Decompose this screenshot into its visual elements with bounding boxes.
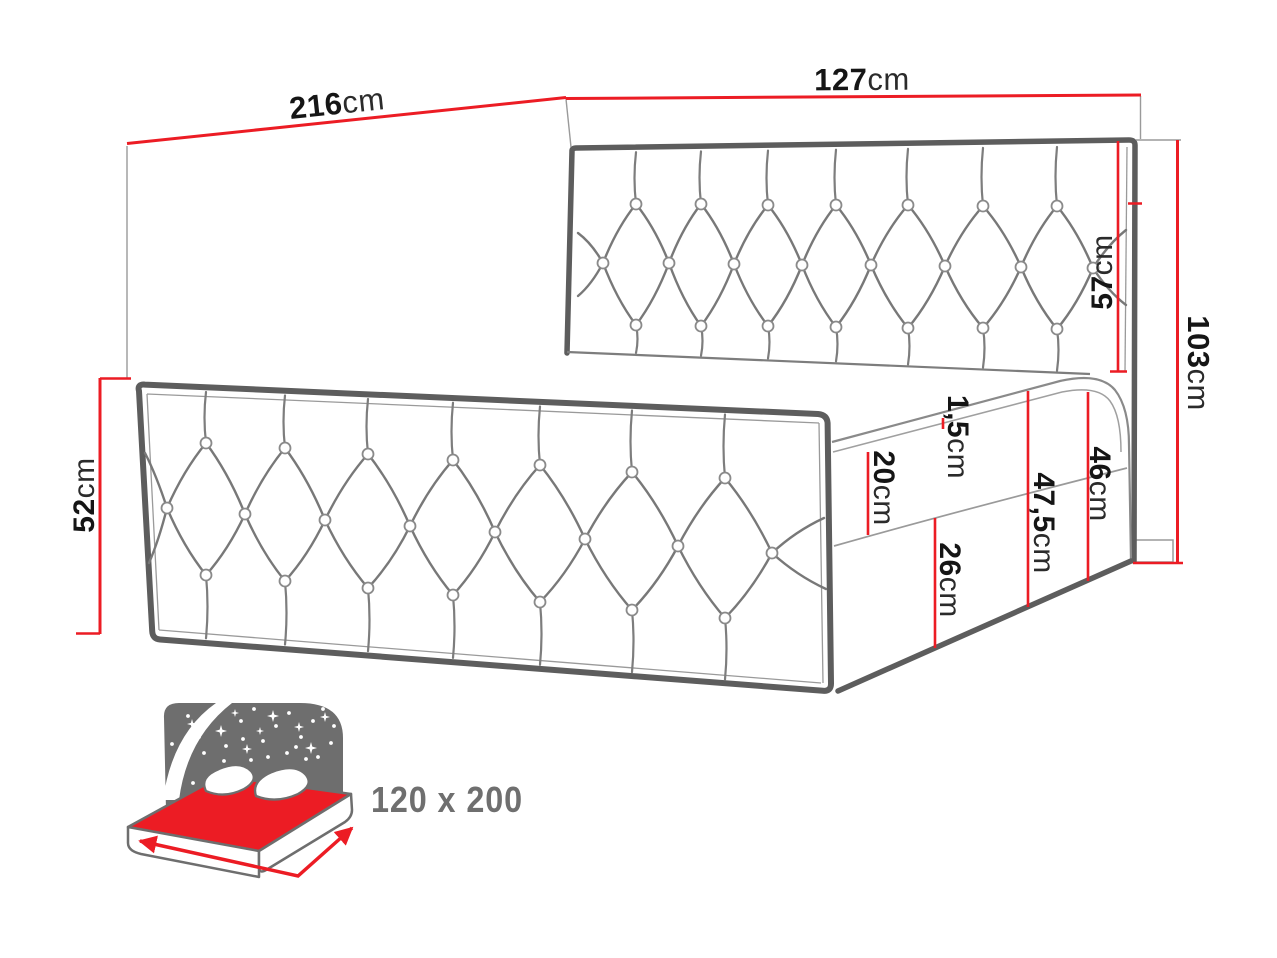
star-dot	[202, 751, 206, 755]
tuft-button	[696, 321, 707, 332]
headboard-face	[567, 142, 1135, 375]
star-dot	[311, 719, 315, 723]
star-dot	[170, 742, 174, 746]
star-dot	[266, 755, 270, 759]
label-mattress: 20cm	[867, 450, 900, 525]
bed-with-starry-headboard-icon: 120 x 200	[128, 703, 523, 877]
tuft-button	[664, 258, 675, 269]
tuft-button	[1052, 324, 1063, 335]
star-dot	[224, 744, 228, 748]
label-box: 26cm	[933, 542, 966, 617]
tuft-button	[240, 509, 251, 520]
star-dot	[321, 707, 325, 711]
tuft-button	[940, 261, 951, 272]
star-dot	[249, 758, 253, 762]
tuft-button	[903, 323, 914, 334]
tuft-button	[631, 199, 642, 210]
star-dot	[222, 759, 226, 763]
tuft-button	[631, 320, 642, 331]
tuft-button	[978, 201, 989, 212]
tuft-button	[320, 515, 331, 526]
star-dot	[241, 737, 245, 741]
tuft-button	[162, 503, 173, 514]
tuft-button	[363, 449, 374, 460]
star-dot	[285, 751, 289, 755]
label-width: 127cm	[814, 62, 910, 98]
star-dot	[287, 711, 291, 715]
tuft-button	[535, 460, 546, 471]
tuft-button	[673, 541, 684, 552]
tuft-button	[598, 258, 609, 269]
tuft-button	[280, 443, 291, 454]
tuft-button	[763, 321, 774, 332]
tuft-button	[767, 548, 778, 559]
star-dot	[316, 755, 320, 759]
tuft-button	[720, 473, 731, 484]
star-dot	[294, 745, 298, 749]
tuft-button	[903, 200, 914, 211]
bed-drawing	[137, 140, 1173, 691]
star-dot	[304, 757, 308, 761]
tuft-button	[448, 455, 459, 466]
tuft-button	[763, 200, 774, 211]
tuft-button	[978, 323, 989, 334]
bed-leg	[1133, 540, 1173, 562]
tuft-button	[405, 521, 416, 532]
tuft-button	[363, 583, 374, 594]
tuft-button	[490, 527, 501, 538]
label-total-height: 103cm	[1181, 315, 1216, 411]
label-topper: 1,5cm	[941, 395, 974, 479]
tuft-button	[627, 467, 638, 478]
tuft-button	[201, 438, 212, 449]
star-dot	[274, 724, 278, 728]
tuft-button	[1016, 262, 1027, 273]
tuft-button	[831, 322, 842, 333]
tuft-button	[580, 534, 591, 545]
label-headboard: 57cm	[1086, 234, 1119, 309]
label-base-height: 46cm	[1083, 446, 1116, 521]
bed-dimension-diagram: 216cm 127cm 57cm 103cm 52cm 1,5cm 20cm 2…	[0, 0, 1277, 958]
tuft-button	[280, 576, 291, 587]
tuft-button	[831, 200, 842, 211]
star-dot	[329, 741, 333, 745]
star-dot	[239, 719, 243, 723]
star-dot	[332, 724, 336, 728]
star-dot	[186, 714, 190, 718]
star-dot	[299, 735, 303, 739]
tuft-button	[535, 597, 546, 608]
size-badge: 120 x 200	[371, 779, 523, 820]
tuft-button	[696, 199, 707, 210]
tuft-button	[729, 259, 740, 270]
label-side-total: 47,5cm	[1027, 472, 1060, 573]
tuft-button	[1052, 201, 1063, 212]
label-footboard: 52cm	[68, 457, 101, 532]
tuft-button	[627, 605, 638, 616]
tuft-button	[201, 570, 212, 581]
tuft-button	[797, 260, 808, 271]
star-dot	[261, 739, 265, 743]
tuft-button	[448, 590, 459, 601]
star-dot	[252, 707, 256, 711]
tuft-button	[866, 260, 877, 271]
star-dot	[191, 781, 195, 785]
tuft-button	[720, 613, 731, 624]
